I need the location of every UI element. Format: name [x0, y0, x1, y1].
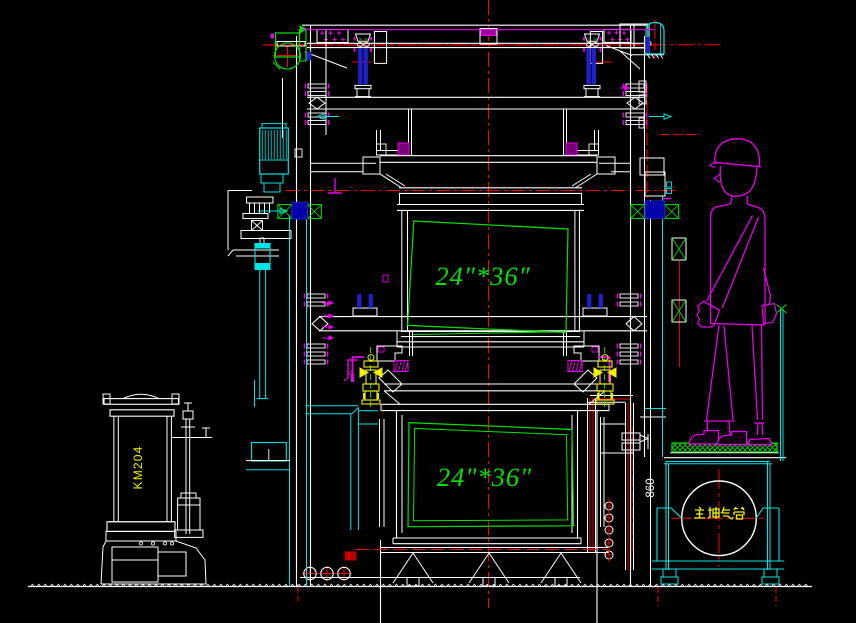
svg-text:KM204: KM204: [131, 445, 145, 489]
svg-text:24″*36″: 24″*36″: [437, 462, 532, 492]
svg-text:860: 860: [645, 478, 657, 497]
svg-text:24″*36″: 24″*36″: [435, 261, 530, 291]
